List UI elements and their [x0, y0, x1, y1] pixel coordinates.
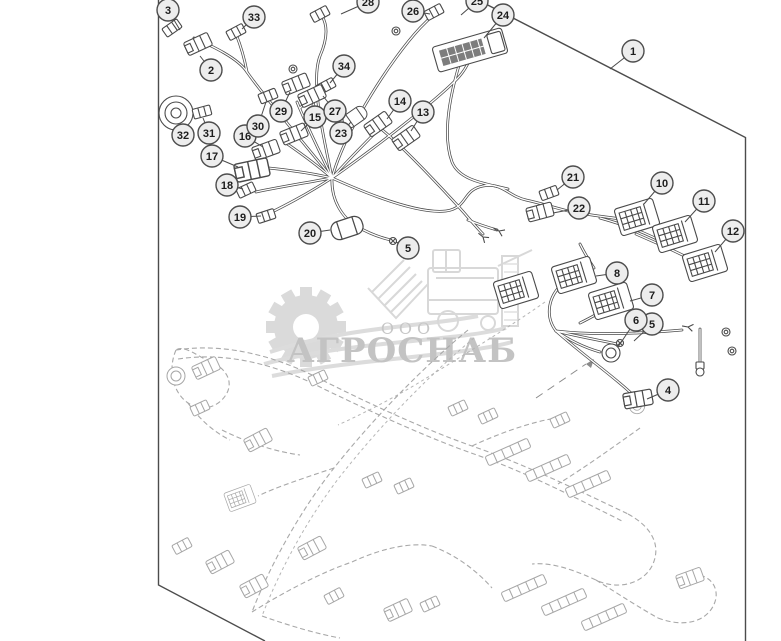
callout-17: 17 [201, 145, 238, 167]
callout-32: 32 [172, 124, 194, 146]
callout-8: 8 [596, 262, 628, 284]
callout-number: 3 [165, 5, 171, 17]
callout-number: 1 [630, 46, 636, 58]
callout-number: 29 [275, 106, 287, 118]
parts-diagram-page: { "page": { "background": "#ffffff" }, "… [0, 0, 781, 641]
callout-28: 28 [341, 0, 379, 14]
callout-10: 10 [644, 172, 673, 204]
callout-6: 6 [618, 309, 647, 347]
callout-number: 21 [567, 172, 579, 184]
harness-diagram-artwork: ООО АГРОСНАБ [0, 0, 781, 641]
callout-number: 5 [649, 319, 655, 331]
callout-number: 24 [497, 10, 510, 22]
callout-number: 15 [309, 112, 321, 124]
callout-number: 10 [656, 178, 668, 190]
callout-19: 19 [229, 206, 261, 228]
callout-number: 2 [208, 65, 214, 77]
callout-5: 5 [396, 237, 419, 259]
connector-24-ecu [432, 28, 508, 73]
callout-31: 31 [198, 118, 220, 144]
callout-number: 14 [394, 96, 407, 108]
callout-20: 20 [299, 222, 330, 244]
callout-number: 32 [177, 130, 189, 142]
callout-number: 30 [252, 121, 264, 133]
callout-number: 27 [329, 106, 341, 118]
callout-number: 5 [405, 243, 411, 255]
callout-25: 25 [461, 0, 488, 15]
callout-23: 23 [330, 122, 352, 144]
callout-number: 28 [362, 0, 374, 9]
callout-7: 7 [630, 284, 663, 306]
callout-number: 18 [221, 180, 233, 192]
callout-number: 11 [698, 196, 710, 208]
callout-21: 21 [557, 166, 584, 190]
callout-1: 1 [610, 40, 644, 69]
callout-number: 8 [614, 268, 620, 280]
callout-number: 26 [407, 6, 419, 18]
callout-number: 4 [665, 385, 672, 397]
callout-12: 12 [715, 220, 744, 252]
terminal-cap [696, 362, 704, 376]
callout-number: 13 [417, 107, 429, 119]
callout-11: 11 [685, 190, 715, 222]
callout-number: 17 [206, 151, 218, 163]
callout-30: 30 [247, 102, 269, 137]
callout-number: 7 [649, 290, 655, 302]
callout-number: 33 [248, 12, 260, 24]
callout-33: 33 [242, 6, 265, 29]
callout-number: 25 [471, 0, 483, 8]
watermark-name: АГРОСНАБ [287, 331, 517, 371]
callout-number: 31 [203, 128, 215, 140]
callout-number: 19 [234, 212, 246, 224]
callout-number: 23 [335, 128, 347, 140]
callout-number: 20 [304, 228, 316, 240]
watermark: ООО АГРОСНАБ [264, 250, 532, 376]
callout-27: 27 [323, 96, 346, 122]
callout-number: 12 [727, 226, 739, 238]
callout-number: 34 [338, 61, 351, 73]
callout-number: 22 [573, 203, 585, 215]
callout-2: 2 [200, 56, 222, 81]
callout-number: 6 [633, 315, 639, 327]
callout-34: 34 [330, 55, 355, 83]
callout-14: 14 [387, 90, 411, 119]
